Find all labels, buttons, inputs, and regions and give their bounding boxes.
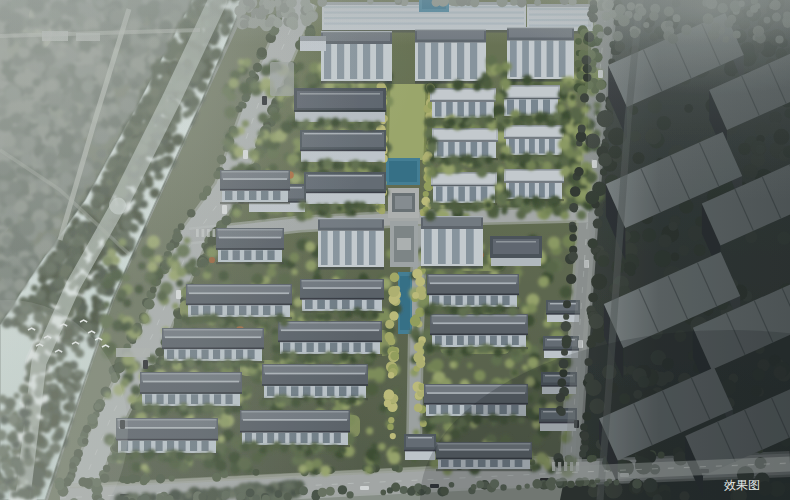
svg-text:效果图: 效果图	[724, 478, 760, 492]
